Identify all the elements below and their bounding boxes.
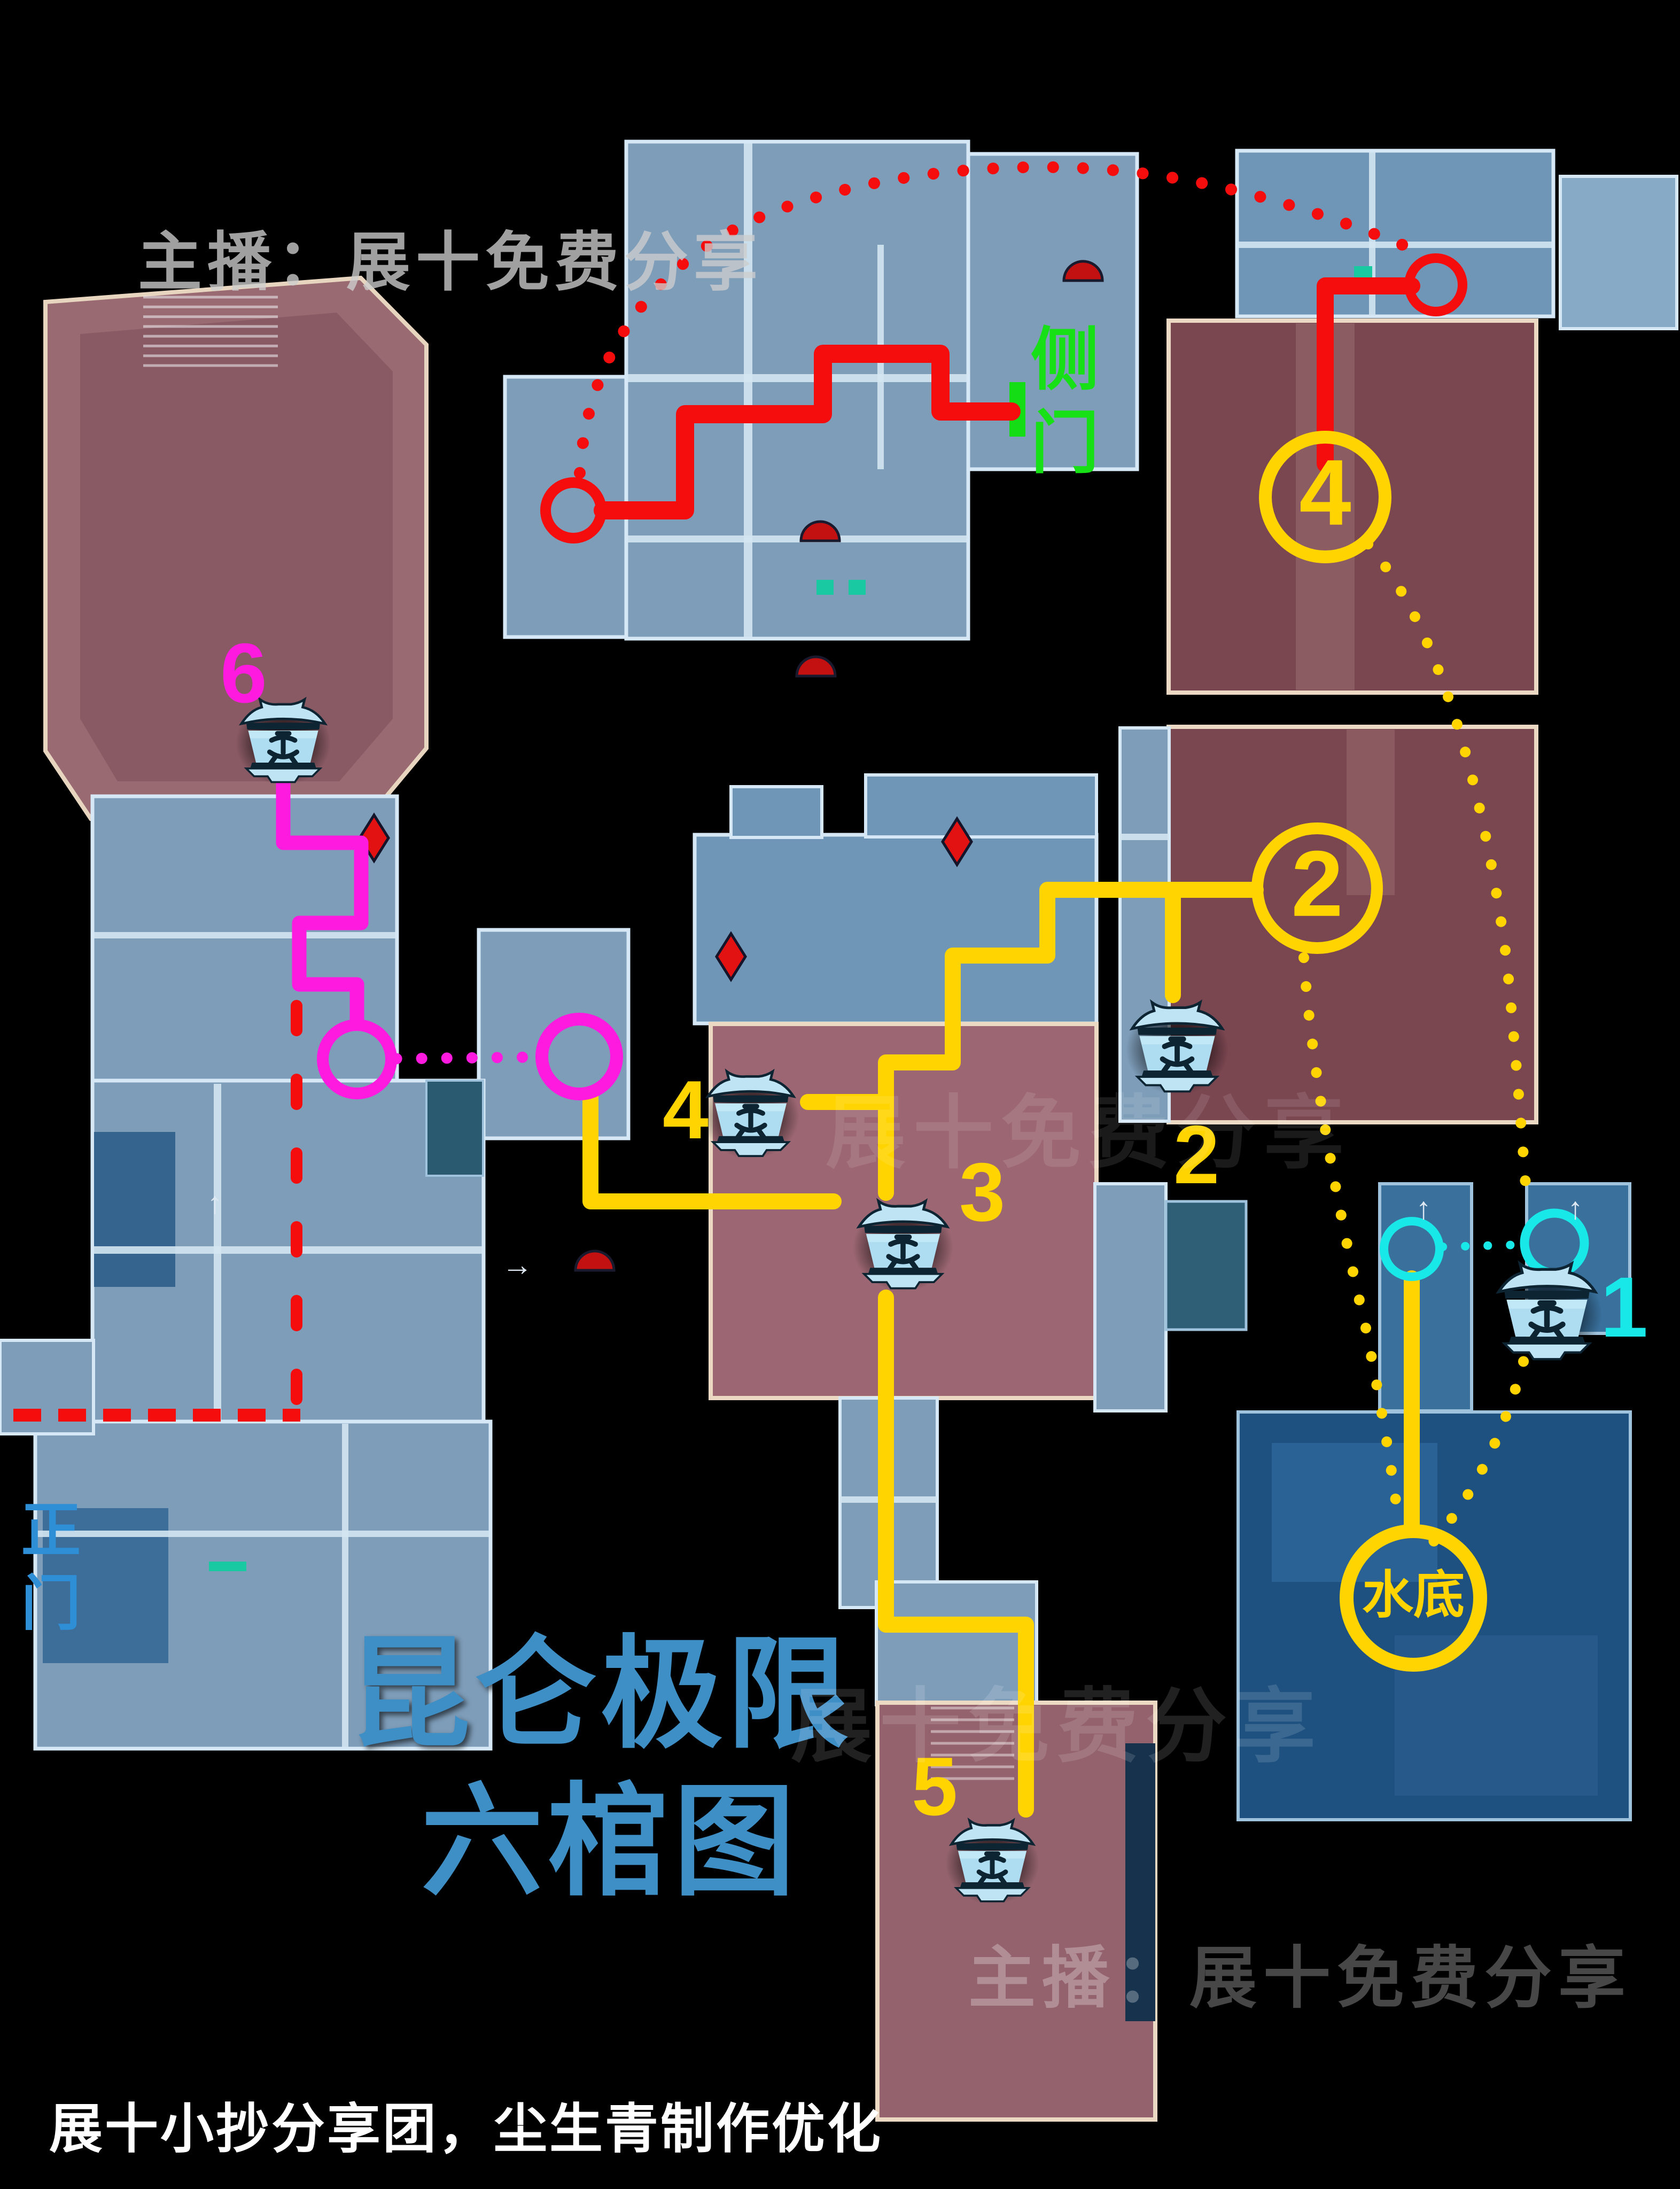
cross-complex-main — [695, 835, 1096, 1023]
wall-strip — [628, 535, 967, 542]
wall-strip — [1120, 834, 1169, 840]
west-mid-panel — [94, 1132, 175, 1287]
top-mid-main — [626, 142, 968, 639]
maroon-hall-south — [877, 1703, 1155, 2120]
great-hall-top-left-inner — [80, 313, 393, 781]
cross-complex-top — [866, 775, 1096, 837]
room-center-right — [1166, 1201, 1246, 1330]
red-dome-icon — [575, 1251, 614, 1270]
teal-door — [816, 580, 834, 595]
corridor-mid-bottom2 — [876, 1582, 1037, 1705]
game-map-screenshot: 主播：展十免费分享 侧门 正门 昆仑极限 六棺图 展十小抄分享团，尘生青制作优化… — [0, 0, 1680, 2189]
wall-strip — [744, 143, 752, 638]
wall-strip — [1239, 242, 1552, 248]
wall-strip — [94, 1246, 482, 1254]
wall-strip — [342, 1424, 348, 1748]
wall-strip — [628, 374, 967, 382]
dark-sliver-south — [1125, 1743, 1155, 2021]
wall-strip — [94, 932, 395, 938]
teal-room — [426, 1081, 483, 1176]
top-right-small — [1560, 176, 1677, 329]
kunlun-map-canvas — [0, 0, 1680, 2189]
corridor-center-right — [1095, 1184, 1166, 1411]
red-dome-icon — [797, 657, 835, 676]
cross-complex-stub — [731, 787, 822, 837]
corridor-se-1 — [1380, 1184, 1472, 1411]
wall-strip — [37, 1531, 489, 1537]
top-mid-right-wing — [968, 154, 1137, 469]
teal-door — [849, 580, 866, 595]
teal-door — [209, 1562, 246, 1571]
